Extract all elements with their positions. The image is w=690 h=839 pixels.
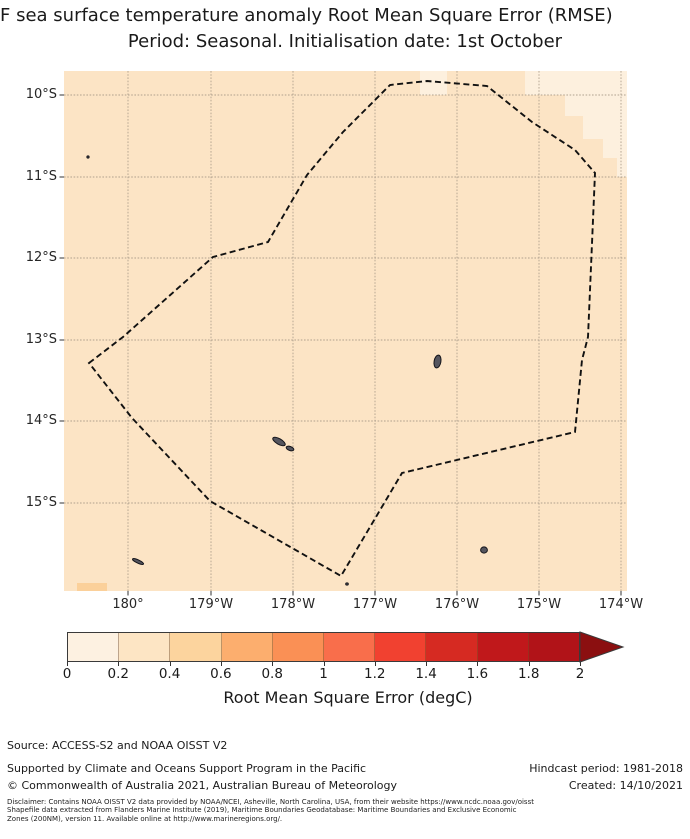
map-overlay <box>64 71 627 598</box>
colorbar-segment <box>119 633 170 661</box>
x-tick-label: 179°W <box>181 597 241 612</box>
supported-by-text: Supported by Climate and Oceans Support … <box>7 762 366 775</box>
disclaimer-line-3: Zones (200NM), version 11. Available onl… <box>7 815 688 823</box>
x-tick-label: 174°W <box>591 597 651 612</box>
island <box>87 156 89 158</box>
source-text: Source: ACCESS-S2 and NOAA OISST V2 <box>7 739 227 752</box>
colorbar-tick-label: 0.8 <box>250 666 294 682</box>
x-tick-label: 176°W <box>427 597 487 612</box>
colorbar-tick-label: 1.2 <box>353 666 397 682</box>
colorbar-segment <box>426 633 477 661</box>
colorbar-tick-label: 0.2 <box>96 666 140 682</box>
y-tick-label: 15°S <box>17 495 57 510</box>
figure-subtitle: Period: Seasonal. Initialisation date: 1… <box>0 31 690 52</box>
y-tick-label: 14°S <box>17 413 57 428</box>
y-tick-label: 12°S <box>17 250 57 265</box>
island <box>272 436 287 448</box>
colorbar-segment <box>170 633 221 661</box>
disclaimer-line-2: Shapefile data extracted from Flanders M… <box>7 806 688 814</box>
colorbar-tick-label: 2 <box>558 666 602 682</box>
island <box>433 355 442 369</box>
colorbar-segment <box>324 633 375 661</box>
colorbar-tick-label: 0.4 <box>148 666 192 682</box>
colorbar-segment <box>273 633 324 661</box>
colorbar-extend-arrow <box>580 631 626 663</box>
colorbar-segment <box>478 633 529 661</box>
colorbar-segment <box>529 633 579 661</box>
colorbar <box>67 632 580 662</box>
colorbar-tick-label: 1 <box>302 666 346 682</box>
colorbar-tick-label: 0 <box>45 666 89 682</box>
copyright-text: © Commonwealth of Australia 2021, Austra… <box>7 779 397 792</box>
colorbar-tick-label: 1.6 <box>455 666 499 682</box>
x-tick-label: 175°W <box>509 597 569 612</box>
colorbar-tick-label: 1.4 <box>404 666 448 682</box>
y-tick-label: 13°S <box>17 332 57 347</box>
island <box>481 547 488 553</box>
colorbar-tick-label: 1.8 <box>507 666 551 682</box>
island <box>346 583 349 585</box>
disclaimer-text: Disclaimer: Contains NOAA OISST V2 data … <box>7 798 688 823</box>
x-tick-label: 177°W <box>345 597 405 612</box>
eez-boundary <box>89 81 595 576</box>
colorbar-tick-label: 0.6 <box>199 666 243 682</box>
colorbar-segment <box>375 633 426 661</box>
y-tick-label: 11°S <box>17 169 57 184</box>
x-tick-label: 178°W <box>263 597 323 612</box>
x-tick-label: 180° <box>98 597 158 612</box>
y-tick-label: 10°S <box>17 87 57 102</box>
colorbar-label: Root Mean Square Error (degC) <box>3 688 690 707</box>
created-date-text: Created: 14/10/2021 <box>569 779 683 792</box>
colorbar-segment <box>68 633 119 661</box>
hindcast-period-text: Hindcast period: 1981-2018 <box>529 762 683 775</box>
figure: F sea surface temperature anomaly Root M… <box>0 0 690 839</box>
colorbar-segment <box>222 633 273 661</box>
figure-title: F sea surface temperature anomaly Root M… <box>0 5 690 26</box>
island <box>132 558 144 566</box>
disclaimer-line-1: Disclaimer: Contains NOAA OISST V2 data … <box>7 798 688 806</box>
